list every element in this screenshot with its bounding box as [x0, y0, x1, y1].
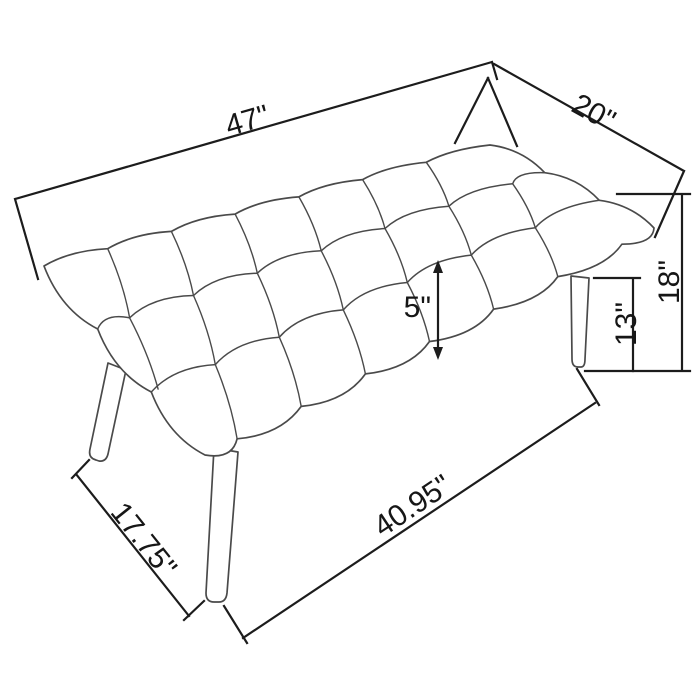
bench-cushion	[44, 145, 654, 456]
bench-dimension-diagram: 47" 20" 5" 13" 18" 17.75" 40.95"	[0, 0, 700, 700]
dim-base-length-label: 40.95"	[368, 469, 458, 544]
arrow-down-icon	[433, 347, 443, 360]
bench-drawing: 47" 20" 5" 13" 18" 17.75" 40.95"	[0, 0, 700, 700]
bench-leg-right	[571, 276, 589, 367]
dim-cushion-thickness-label: 5"	[404, 291, 431, 324]
dim-front-leg-spread: 17.75"	[72, 460, 204, 620]
bench-leg-left	[90, 363, 126, 461]
dim-overall-height-label: 18"	[653, 260, 686, 304]
dim-top-length-label: 47"	[222, 99, 273, 143]
cushion-outline	[44, 145, 654, 456]
dim-leg-height-label: 13"	[610, 302, 643, 346]
dim-leg-height: 13"	[594, 278, 643, 371]
bench-leg-center	[206, 448, 238, 602]
dim-front-leg-spread-label: 17.75"	[104, 496, 183, 584]
